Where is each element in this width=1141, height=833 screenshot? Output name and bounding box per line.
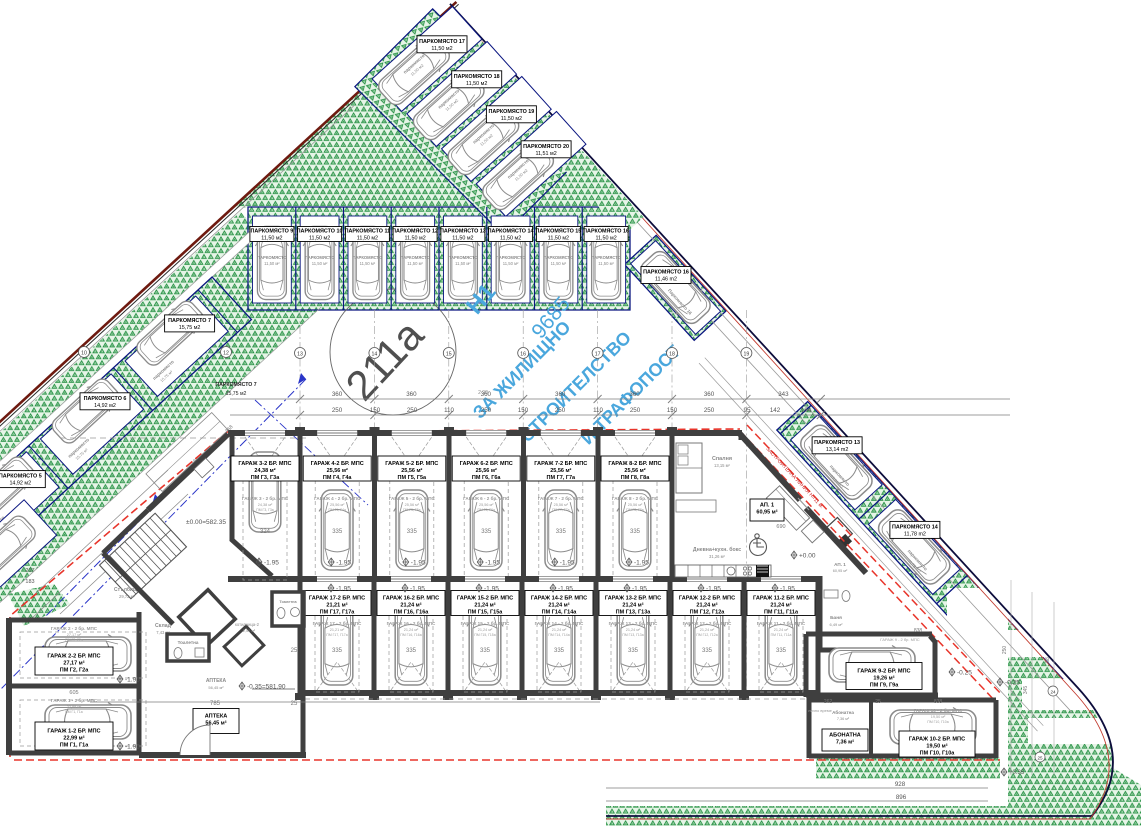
svg-text:110: 110 <box>444 407 454 414</box>
svg-text:25,56 м²: 25,56 м² <box>550 467 571 474</box>
svg-text:Тоалетна: Тоалетна <box>279 600 297 604</box>
svg-text:25: 25 <box>875 699 881 705</box>
svg-text:250: 250 <box>1002 646 1008 655</box>
svg-text:25,56 м²: 25,56 м² <box>624 467 645 474</box>
svg-text:ГАРАЖ 17 - 2 бр. МПС: ГАРАЖ 17 - 2 бр. МПС <box>313 620 362 626</box>
svg-text:27,17 м²: 27,17 м² <box>63 660 84 667</box>
svg-text:ГАРАЖ 15 - 2 бр. МПС: ГАРАЖ 15 - 2 бр. МПС <box>461 620 510 626</box>
svg-text:335: 335 <box>702 648 713 654</box>
svg-text:ГАРАЖ 5 - 2 бр. МПС: ГАРАЖ 5 - 2 бр. МПС <box>389 495 436 501</box>
svg-text:ПАРКОМЯСТО 10: ПАРКОМЯСТО 10 <box>297 229 343 235</box>
svg-text:690: 690 <box>776 524 785 530</box>
svg-text:207: 207 <box>25 568 34 574</box>
svg-text:-1.95: -1.95 <box>125 744 140 751</box>
svg-text:60,95 м²: 60,95 м² <box>756 509 777 516</box>
svg-text:13,14 m2: 13,14 m2 <box>826 447 848 453</box>
svg-text:250: 250 <box>630 407 641 414</box>
svg-text:ГАРАЖ 2-2 БР. МПС: ГАРАЖ 2-2 БР. МПС <box>47 654 100 660</box>
svg-text:ПАРКОМЯСТО 16: ПАРКОМЯСТО 16 <box>643 270 689 276</box>
svg-text:АП. 1: АП. 1 <box>760 503 774 509</box>
svg-text:10: 10 <box>81 350 87 356</box>
svg-text:21,24 м²: 21,24 м² <box>478 628 493 632</box>
svg-text:14: 14 <box>372 351 378 357</box>
svg-text:ГАРАЖ 11 - 2 бр. МПС: ГАРАЖ 11 - 2 бр. МПС <box>757 620 806 626</box>
svg-text:ПАРКОМЯСТО 20: ПАРКОМЯСТО 20 <box>523 144 569 150</box>
svg-text:25,56 м²: 25,56 м² <box>554 503 569 507</box>
svg-text:335: 335 <box>554 648 565 654</box>
svg-text:2,50 м²: 2,50 м² <box>243 629 256 633</box>
svg-text:25,56 м²: 25,56 м² <box>401 467 422 474</box>
svg-text:ПАРКОМЯСТО 7: ПАРКОМЯСТО 7 <box>168 318 211 324</box>
svg-text:21,24 м²: 21,24 м² <box>552 628 567 632</box>
svg-text:335: 335 <box>480 648 491 654</box>
svg-text:250: 250 <box>704 407 715 414</box>
svg-text:22,99 м²: 22,99 м² <box>67 705 82 709</box>
svg-text:АБОНАТНА: АБОНАТНА <box>829 733 861 739</box>
svg-text:-1.95: -1.95 <box>336 560 351 567</box>
svg-text:14,92 м2: 14,92 м2 <box>94 403 116 409</box>
svg-text:110: 110 <box>593 407 603 414</box>
svg-text:ПМ Г13, Г13а: ПМ Г13, Г13а <box>622 633 643 637</box>
svg-text:11,50 м2: 11,50 м2 <box>595 236 616 242</box>
svg-text:+0.00: +0.00 <box>799 553 816 560</box>
svg-text:183: 183 <box>25 579 34 585</box>
svg-text:ГАРАЖ 1-2 БР. МПС: ГАРАЖ 1-2 БР. МПС <box>47 729 100 735</box>
svg-text:11,78 m2: 11,78 m2 <box>904 531 926 537</box>
svg-text:13,15 м²: 13,15 м² <box>714 463 731 468</box>
svg-text:ГАРАЖ 12 - 2 бр. МПС: ГАРАЖ 12 - 2 бр. МПС <box>683 620 732 626</box>
svg-text:7,36 м²: 7,36 м² <box>836 739 854 746</box>
svg-text:360: 360 <box>555 391 566 398</box>
svg-text:25,56 м²: 25,56 м² <box>476 467 497 474</box>
svg-text:335: 335 <box>776 648 787 654</box>
svg-text:11,50 м2: 11,50 м2 <box>309 236 330 242</box>
svg-text:11,50 м2: 11,50 м2 <box>431 46 452 52</box>
svg-text:-1.95: -1.95 <box>634 560 649 567</box>
svg-text:27,17 м²: 27,17 м² <box>67 633 82 637</box>
svg-text:ГАРАЖ 3-2 БР. МПС: ГАРАЖ 3-2 БР. МПС <box>238 461 291 467</box>
svg-text:11,50 м2: 11,50 м2 <box>548 236 569 242</box>
svg-text:ПАРКОМЯСТО: ПАРКОМЯСТО <box>305 255 336 260</box>
svg-text:ПАРКОМЯСТО: ПАРКОМЯСТО <box>353 255 384 260</box>
svg-text:-1.95: -1.95 <box>632 586 647 593</box>
svg-text:56,45 м²: 56,45 м² <box>208 685 224 690</box>
svg-text:+0.35: +0.35 <box>1009 770 1025 776</box>
svg-text:ПАРКОМЯСТО: ПАРКОМЯСТО <box>448 255 479 260</box>
svg-text:ПМ Г7, Г7а: ПМ Г7, Г7а <box>547 475 576 481</box>
svg-text:21,24 м²: 21,24 м² <box>774 628 789 632</box>
svg-text:324: 324 <box>260 529 271 535</box>
svg-text:ГАРАЖ 4-2 БР. МПС: ГАРАЖ 4-2 БР. МПС <box>311 461 364 467</box>
svg-text:11,50 м²: 11,50 м² <box>551 261 567 266</box>
svg-text:11,50 м²: 11,50 м² <box>312 261 328 266</box>
svg-text:ГАРАЖ 6 - 2 бр. МПС: ГАРАЖ 6 - 2 бр. МПС <box>463 495 510 501</box>
svg-text:ПАРКОМЯСТО 17: ПАРКОМЯСТО 17 <box>419 39 465 45</box>
svg-text:АПТЕКА: АПТЕКА <box>206 678 227 684</box>
svg-text:6,49 м²: 6,49 м² <box>830 622 844 627</box>
svg-text:335: 335 <box>556 529 567 535</box>
svg-text:ПАРКОМЯСТО 15: ПАРКОМЯСТО 15 <box>535 229 581 235</box>
svg-text:ГАРАЖ 13 - 2 бр. МПС: ГАРАЖ 13 - 2 бр. МПС <box>609 620 658 626</box>
svg-text:22,99 м²: 22,99 м² <box>63 735 84 742</box>
svg-text:ГАРАЖ 9 - 2 бр. МПС: ГАРАЖ 9 - 2 бр. МПС <box>880 637 920 642</box>
svg-text:ГАРАЖ 11-2 БР. МПС: ГАРАЖ 11-2 БР. МПС <box>753 596 809 602</box>
svg-text:ПАРКОМЯСТО 7: ПАРКОМЯСТО 7 <box>215 382 256 388</box>
svg-text:21,24 м²: 21,24 м² <box>548 602 569 609</box>
svg-text:ПАРКОМЯСТО 11: ПАРКОМЯСТО 11 <box>345 229 391 235</box>
svg-text:11,50 м2: 11,50 м2 <box>404 236 425 242</box>
svg-text:ПМ Г2, Г2а: ПМ Г2, Г2а <box>65 638 83 642</box>
svg-text:150: 150 <box>370 407 381 414</box>
svg-text:21,24 м²: 21,24 м² <box>700 628 715 632</box>
svg-text:±0.00=582.35: ±0.00=582.35 <box>186 519 226 526</box>
svg-text:ПМ Г16, Г16а: ПМ Г16, Г16а <box>394 610 430 616</box>
svg-text:19,50 м²: 19,50 м² <box>931 715 946 719</box>
svg-text:ПМ Г3, Г3а: ПМ Г3, Г3а <box>256 508 274 512</box>
svg-text:335: 335 <box>628 648 639 654</box>
svg-text:-1.95: -1.95 <box>485 560 500 567</box>
svg-text:ПАРКОМЯСТО: ПАРКОМЯСТО <box>257 255 288 260</box>
svg-text:-1.95: -1.95 <box>336 586 351 593</box>
svg-text:ПМ Г14, Г14а: ПМ Г14, Г14а <box>542 610 578 616</box>
svg-text:-1.95: -1.95 <box>706 586 721 593</box>
svg-text:-1.95: -1.95 <box>484 586 499 593</box>
svg-text:18: 18 <box>669 351 675 357</box>
svg-text:11,50 м²: 11,50 м² <box>360 261 376 266</box>
svg-text:838: 838 <box>914 628 923 634</box>
svg-text:ПМ Г11, Г11а: ПМ Г11, Г11а <box>764 610 799 616</box>
svg-text:13: 13 <box>297 351 303 357</box>
svg-text:ПАРКОМЯСТО 5: ПАРКОМЯСТО 5 <box>0 474 42 480</box>
svg-text:12: 12 <box>223 350 229 356</box>
svg-text:21,24 м²: 21,24 м² <box>404 628 419 632</box>
svg-text:360: 360 <box>629 391 640 398</box>
svg-text:19,50 м²: 19,50 м² <box>926 743 947 750</box>
svg-text:15,75 м2: 15,75 м2 <box>179 325 201 331</box>
svg-text:ПАРКОМЯСТО 13: ПАРКОМЯСТО 13 <box>814 440 860 446</box>
svg-text:250: 250 <box>407 407 418 414</box>
svg-text:345: 345 <box>1023 686 1029 695</box>
svg-text:25: 25 <box>1037 755 1043 760</box>
svg-text:360: 360 <box>704 391 715 398</box>
svg-text:ГАРАЖ 17-2 БР. МПС: ГАРАЖ 17-2 БР. МПС <box>309 596 365 602</box>
svg-text:-1.95: -1.95 <box>264 560 279 567</box>
svg-text:ПАРКОМЯСТО: ПАРКОМЯСТО <box>400 255 431 260</box>
svg-text:ПМ Г6, Г6а: ПМ Г6, Г6а <box>477 508 495 512</box>
svg-text:ГАРАЖ 6-2 БР. МПС: ГАРАЖ 6-2 БР. МПС <box>460 461 513 467</box>
svg-text:котилница-2: котилница-2 <box>235 622 260 627</box>
svg-text:25,56 м²: 25,56 м² <box>327 467 348 474</box>
svg-text:-1.95: -1.95 <box>411 560 426 567</box>
svg-text:-1.95: -1.95 <box>410 586 425 593</box>
svg-text:Дневна+кухн. бокс: Дневна+кухн. бокс <box>693 546 741 553</box>
svg-text:11,50 м2: 11,50 м2 <box>357 236 378 242</box>
svg-text:25,56 м²: 25,56 м² <box>405 503 420 507</box>
svg-text:Абонатна: Абонатна <box>832 709 854 715</box>
svg-text:ПМ Г17, Г17а: ПМ Г17, Г17а <box>326 633 347 637</box>
svg-text:7,36 м²: 7,36 м² <box>837 717 850 721</box>
svg-text:ПАРКОМЯСТО 13: ПАРКОМЯСТО 13 <box>440 229 486 235</box>
svg-text:ПМ Г12, Г12а: ПМ Г12, Г12а <box>696 633 717 637</box>
svg-text:ПМ Г4, Г4а: ПМ Г4, Г4а <box>328 508 346 512</box>
svg-text:ГАРАЖ 14 - 2 бр. МПС: ГАРАЖ 14 - 2 бр. МПС <box>535 620 584 626</box>
svg-text:ГАРАЖ 5-2 БР. МПС: ГАРАЖ 5-2 БР. МПС <box>385 461 438 467</box>
svg-text:ПМ Г10, Г10а: ПМ Г10, Г10а <box>927 720 948 724</box>
svg-text:29,72 м²: 29,72 м² <box>119 594 136 599</box>
svg-text:343: 343 <box>778 391 789 398</box>
svg-text:ПАРКОМЯСТО: ПАРКОМЯСТО <box>496 255 527 260</box>
svg-text:24,38 м²: 24,38 м² <box>258 503 273 507</box>
svg-text:25,56 м²: 25,56 м² <box>479 503 494 507</box>
svg-text:-1.95: -1.95 <box>558 586 573 593</box>
svg-text:ГАРАЖ 4 - 2 бр. МПС: ГАРАЖ 4 - 2 бр. МПС <box>314 495 361 501</box>
svg-text:24,38 м²: 24,38 м² <box>254 467 275 474</box>
svg-text:-1.95: -1.95 <box>780 586 795 593</box>
svg-text:142: 142 <box>770 407 781 414</box>
svg-text:ГАРАЖ 10-2 БР. МПС: ГАРАЖ 10-2 БР. МПС <box>909 737 965 743</box>
svg-text:21,21 м²: 21,21 м² <box>326 602 347 609</box>
svg-text:11,50 м²: 11,50 м² <box>598 261 614 266</box>
svg-text:ПМ Г11, Г11а: ПМ Г11, Г11а <box>771 633 792 637</box>
svg-text:ГАРАЖ 2 - 2 бр. МПС: ГАРАЖ 2 - 2 бр. МПС <box>51 625 98 631</box>
svg-text:ПМ Г2, Г2а: ПМ Г2, Г2а <box>60 668 89 674</box>
svg-text:-0.25: -0.25 <box>1005 680 1020 687</box>
svg-text:АП. 1: АП. 1 <box>834 562 846 567</box>
svg-text:31,26 м²: 31,26 м² <box>709 554 726 559</box>
svg-text:150: 150 <box>667 407 678 414</box>
svg-text:ГАРАЖ 8 - 2 бр. МПС: ГАРАЖ 8 - 2 бр. МПС <box>612 495 659 501</box>
svg-text:-1.95: -1.95 <box>125 677 140 684</box>
svg-text:11,46 m2: 11,46 m2 <box>655 277 677 283</box>
svg-text:ПМ Г3, Г3а: ПМ Г3, Г3а <box>251 475 280 481</box>
svg-text:335: 335 <box>481 529 492 535</box>
svg-text:60,95 м²: 60,95 м² <box>833 569 848 573</box>
svg-text:ГАРАЖ 14-2 БР. МПС: ГАРАЖ 14-2 БР. МПС <box>531 596 587 602</box>
svg-text:250: 250 <box>555 407 566 414</box>
svg-text:ПМ Г9, Г9а: ПМ Г9, Г9а <box>870 683 899 689</box>
svg-text:335: 335 <box>630 529 641 535</box>
svg-text:ГАРАЖ 10 - 2 бр. МПС: ГАРАЖ 10 - 2 бр. МПС <box>914 707 963 713</box>
svg-text:11,50 м²: 11,50 м² <box>264 261 280 266</box>
svg-text:21,24 м²: 21,24 м² <box>474 602 495 609</box>
svg-text:21,24 м²: 21,24 м² <box>626 628 641 632</box>
svg-text:ПАРКОМЯСТО 12: ПАРКОМЯСТО 12 <box>392 229 438 235</box>
svg-text:262: 262 <box>824 699 833 705</box>
svg-text:95: 95 <box>744 407 751 414</box>
svg-text:335: 335 <box>407 529 418 535</box>
svg-text:ГАРАЖ 13-2 БР. МПС: ГАРАЖ 13-2 БР. МПС <box>605 596 661 602</box>
svg-text:ПМ Г5, Г5а: ПМ Г5, Г5а <box>403 508 421 512</box>
svg-text:11,50 м2: 11,50 м2 <box>466 81 487 87</box>
svg-text:25,56 м²: 25,56 м² <box>628 503 643 507</box>
svg-text:11,51 м2: 11,51 м2 <box>535 151 556 157</box>
svg-text:11,50 м2: 11,50 м2 <box>500 236 521 242</box>
svg-text:19,26 м²: 19,26 м² <box>873 675 894 682</box>
svg-text:ПМ Г4, Г4а: ПМ Г4, Г4а <box>323 475 352 481</box>
svg-text:ПМ Г15, Г15а: ПМ Г15, Г15а <box>474 633 495 637</box>
svg-text:ГАРАЖ 9-2 БР. МПС: ГАРАЖ 9-2 БР. МПС <box>857 669 910 675</box>
svg-text:ПМ Г5, Г5а: ПМ Г5, Г5а <box>398 475 427 481</box>
svg-text:ГАРАЖ 8-2 БР. МПС: ГАРАЖ 8-2 БР. МПС <box>608 461 661 467</box>
svg-text:15,75 м2: 15,75 м2 <box>226 391 247 397</box>
svg-text:ПМ Г10, Г10а: ПМ Г10, Г10а <box>920 751 956 757</box>
svg-text:-0.25: -0.25 <box>957 670 972 677</box>
svg-text:ПАРКОМЯСТО 19: ПАРКОМЯСТО 19 <box>488 109 534 115</box>
svg-text:Баня: Баня <box>830 615 842 621</box>
svg-text:11,50 м2: 11,50 м2 <box>501 116 522 122</box>
svg-text:360: 360 <box>332 391 343 398</box>
svg-text:ПМ Г8, Г8а: ПМ Г8, Г8а <box>626 508 644 512</box>
svg-text:ГАРАЖ 16 - 2 бр. МПС: ГАРАЖ 16 - 2 бр. МПС <box>387 620 436 626</box>
svg-text:25: 25 <box>291 648 298 654</box>
svg-text:11,50 м2: 11,50 м2 <box>261 236 282 242</box>
svg-text:ПАРКОМЯСТО 6: ПАРКОМЯСТО 6 <box>84 396 127 402</box>
svg-text:ГАРАЖ 7-2 БР. МПС: ГАРАЖ 7-2 БР. МПС <box>534 461 587 467</box>
svg-text:ГАРАЖ 16-2 БР. МПС: ГАРАЖ 16-2 БР. МПС <box>383 596 439 602</box>
svg-text:ПАРКОМЯСТО: ПАРКОМЯСТО <box>591 255 622 260</box>
svg-text:ПАРКОМЯСТО 14: ПАРКОМЯСТО 14 <box>488 229 534 235</box>
svg-text:ПМ Г16, Г16а: ПМ Г16, Г16а <box>400 633 421 637</box>
svg-text:ПМ Г15, Г15а: ПМ Г15, Г15а <box>468 610 504 616</box>
svg-text:11,50 м²: 11,50 м² <box>503 261 519 266</box>
svg-text:Спалня: Спалня <box>712 456 732 462</box>
svg-text:Тоалетна: Тоалетна <box>178 640 199 645</box>
svg-text:335: 335 <box>406 648 417 654</box>
svg-text:335: 335 <box>332 529 343 535</box>
svg-text:605: 605 <box>69 690 78 696</box>
svg-text:ПМ Г6, Г6а: ПМ Г6, Г6а <box>472 475 501 481</box>
svg-text:Склад: Склад <box>155 623 172 629</box>
svg-text:17: 17 <box>595 351 601 357</box>
svg-text:250: 250 <box>332 407 343 414</box>
svg-text:11,50 м2: 11,50 м2 <box>452 236 473 242</box>
svg-text:58: 58 <box>1045 657 1051 663</box>
svg-text:21,24 м²: 21,24 м² <box>400 602 421 609</box>
svg-text:лично време: лично време <box>808 708 833 713</box>
svg-text:14,92 м2: 14,92 м2 <box>9 481 31 487</box>
svg-text:11,50 м²: 11,50 м² <box>407 261 423 266</box>
svg-text:838: 838 <box>934 699 943 705</box>
svg-text:150: 150 <box>518 407 529 414</box>
svg-text:21,21 м²: 21,21 м² <box>330 628 345 632</box>
svg-text:ГАРАЖ 3 - 2 бр. МПС: ГАРАЖ 3 - 2 бр. МПС <box>242 495 289 501</box>
svg-text:2 90: 2 90 <box>478 390 488 396</box>
svg-text:164: 164 <box>801 407 812 414</box>
svg-text:ГАРАЖ 7 - 2 бр. МПС: ГАРАЖ 7 - 2 бр. МПС <box>538 495 585 501</box>
svg-text:16: 16 <box>520 351 526 357</box>
svg-text:ПМ Г12, Г12а: ПМ Г12, Г12а <box>690 610 726 616</box>
svg-text:ПМ Г14, Г14а: ПМ Г14, Г14а <box>548 633 569 637</box>
svg-text:335: 335 <box>332 648 343 654</box>
svg-text:-0.35=581.90: -0.35=581.90 <box>247 684 286 691</box>
svg-text:ГАРАЖ 12-2 БР. МПС: ГАРАЖ 12-2 БР. МПС <box>679 596 735 602</box>
svg-text:24: 24 <box>1050 689 1056 694</box>
svg-text:ПАРКОМЯСТО 9: ПАРКОМЯСТО 9 <box>250 229 293 235</box>
svg-text:ГАРАЖ 15-2 БР. МПС: ГАРАЖ 15-2 БР. МПС <box>457 596 513 602</box>
svg-text:21,24 м²: 21,24 м² <box>622 602 643 609</box>
svg-text:896: 896 <box>896 794 907 801</box>
svg-text:ПАРКОМЯСТО 14: ПАРКОМЯСТО 14 <box>892 524 938 530</box>
svg-text:ПМ Г1, Г1а: ПМ Г1, Г1а <box>65 710 83 714</box>
svg-text:928: 928 <box>895 781 906 788</box>
svg-text:ПАРКОМЯСТО 18: ПАРКОМЯСТО 18 <box>454 74 500 80</box>
svg-text:360: 360 <box>406 391 417 398</box>
svg-text:19: 19 <box>744 351 750 357</box>
svg-text:25,56 м²: 25,56 м² <box>330 503 345 507</box>
svg-text:-1.95: -1.95 <box>560 560 575 567</box>
svg-text:21,24 м²: 21,24 м² <box>696 602 717 609</box>
svg-text:11,50 м²: 11,50 м² <box>455 261 471 266</box>
svg-text:ПМ Г13, Г13а: ПМ Г13, Г13а <box>616 610 652 616</box>
svg-text:ПАРКОМЯСТО 16: ПАРКОМЯСТО 16 <box>583 229 629 235</box>
svg-text:ПМ Г1, Г1а: ПМ Г1, Г1а <box>60 743 89 749</box>
svg-text:ПАРКОМЯСТО: ПАРКОМЯСТО <box>544 255 575 260</box>
svg-text:АПТЕКА: АПТЕКА <box>205 714 228 720</box>
svg-text:ПМ Г17, Г17а: ПМ Г17, Г17а <box>320 610 356 616</box>
svg-text:250: 250 <box>481 407 492 414</box>
svg-text:15: 15 <box>446 351 452 357</box>
svg-text:ПМ Г7, Г7а: ПМ Г7, Г7а <box>552 508 570 512</box>
svg-text:ПМ Г8, Г8а: ПМ Г8, Г8а <box>621 475 650 481</box>
svg-text:21,24 м²: 21,24 м² <box>770 602 791 609</box>
